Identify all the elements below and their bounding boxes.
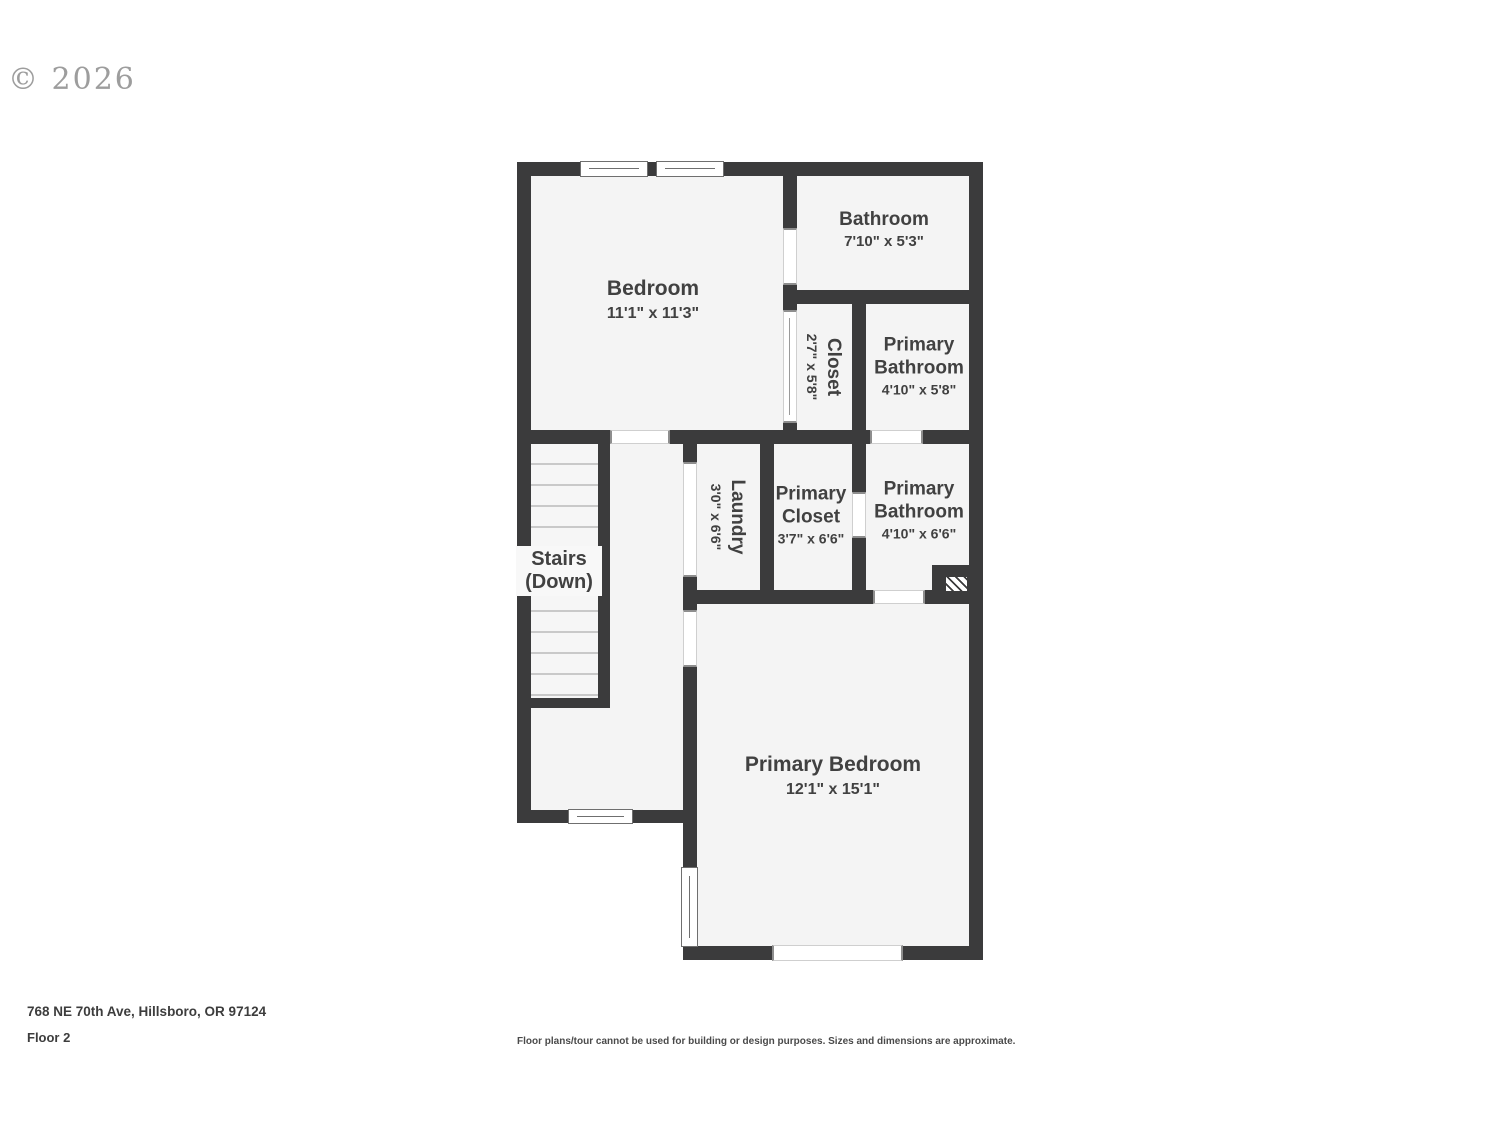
primary-bedroom-side-window <box>681 867 698 947</box>
shower-hatch <box>944 575 969 593</box>
closet-door-opening <box>783 310 797 423</box>
room-label-closet: Closet 2'7" x 5'8" <box>801 334 845 401</box>
room-name: Primary Closet <box>761 482 861 528</box>
wall-exterior-right <box>969 162 983 960</box>
room-dims: 12'1" x 15'1" <box>745 778 921 802</box>
wall-bathroom-bottom <box>783 290 983 304</box>
hall-window <box>568 809 633 824</box>
bathroom-door-opening <box>783 228 797 285</box>
room-dims: 3'0" x 6'6" <box>705 480 726 555</box>
room-dims: 4'10" x 6'6" <box>859 524 979 545</box>
floorplan-page: © 2026 Stairs (Down) Bedroom 11'1" x 11 <box>0 0 1500 1125</box>
disclaimer-text: Floor plans/tour cannot be used for buil… <box>517 1036 983 1047</box>
stairs-label: Stairs (Down) <box>516 546 602 596</box>
primary-bedroom-door-opening <box>683 610 697 667</box>
room-name: Bedroom <box>607 276 699 302</box>
property-address: 768 NE 70th Ave, Hillsboro, OR 97124 <box>27 1004 266 1019</box>
room-label-primary-bedroom: Primary Bedroom 12'1" x 15'1" <box>745 752 921 802</box>
room-dims: 7'10" x 5'3" <box>839 231 929 254</box>
room-label-primary-bathroom-upper: Primary Bathroom 4'10" x 5'8" <box>859 333 979 400</box>
floor-label: Floor 2 <box>27 1030 70 1045</box>
room-dims: 4'10" x 5'8" <box>859 380 979 401</box>
laundry-door-opening <box>683 462 697 577</box>
room-name: Primary Bathroom <box>859 333 979 379</box>
primary-bathroom-passage-opening <box>870 430 923 444</box>
bedroom-door-opening <box>610 430 670 444</box>
bedroom-window-right <box>656 161 724 177</box>
room-name: Primary Bathroom <box>859 477 979 523</box>
primary-bedroom-bath-door-opening <box>873 590 925 604</box>
room-label-laundry: Laundry 3'0" x 6'6" <box>705 480 749 555</box>
wall-exterior-left <box>517 162 531 823</box>
room-dims: 3'7" x 6'6" <box>761 529 861 550</box>
wall-shower-top <box>932 565 983 575</box>
room-label-bathroom: Bathroom 7'10" x 5'3" <box>839 208 929 254</box>
room-label-bedroom: Bedroom 11'1" x 11'3" <box>607 276 699 326</box>
bedroom-window-left <box>580 161 648 177</box>
room-dims: 2'7" x 5'8" <box>801 334 822 401</box>
copyright-watermark: © 2026 <box>8 62 136 97</box>
room-dims: 11'1" x 11'3" <box>607 302 699 326</box>
primary-bedroom-bottom-opening <box>772 945 903 961</box>
room-name: Closet <box>822 334 845 401</box>
room-label-primary-closet: Primary Closet 3'7" x 6'6" <box>761 482 861 549</box>
room-label-primary-bathroom-lower: Primary Bathroom 4'10" x 6'6" <box>859 477 979 544</box>
room-name: Laundry <box>726 480 749 555</box>
room-name: Primary Bedroom <box>745 752 921 778</box>
room-name: Bathroom <box>839 208 929 231</box>
